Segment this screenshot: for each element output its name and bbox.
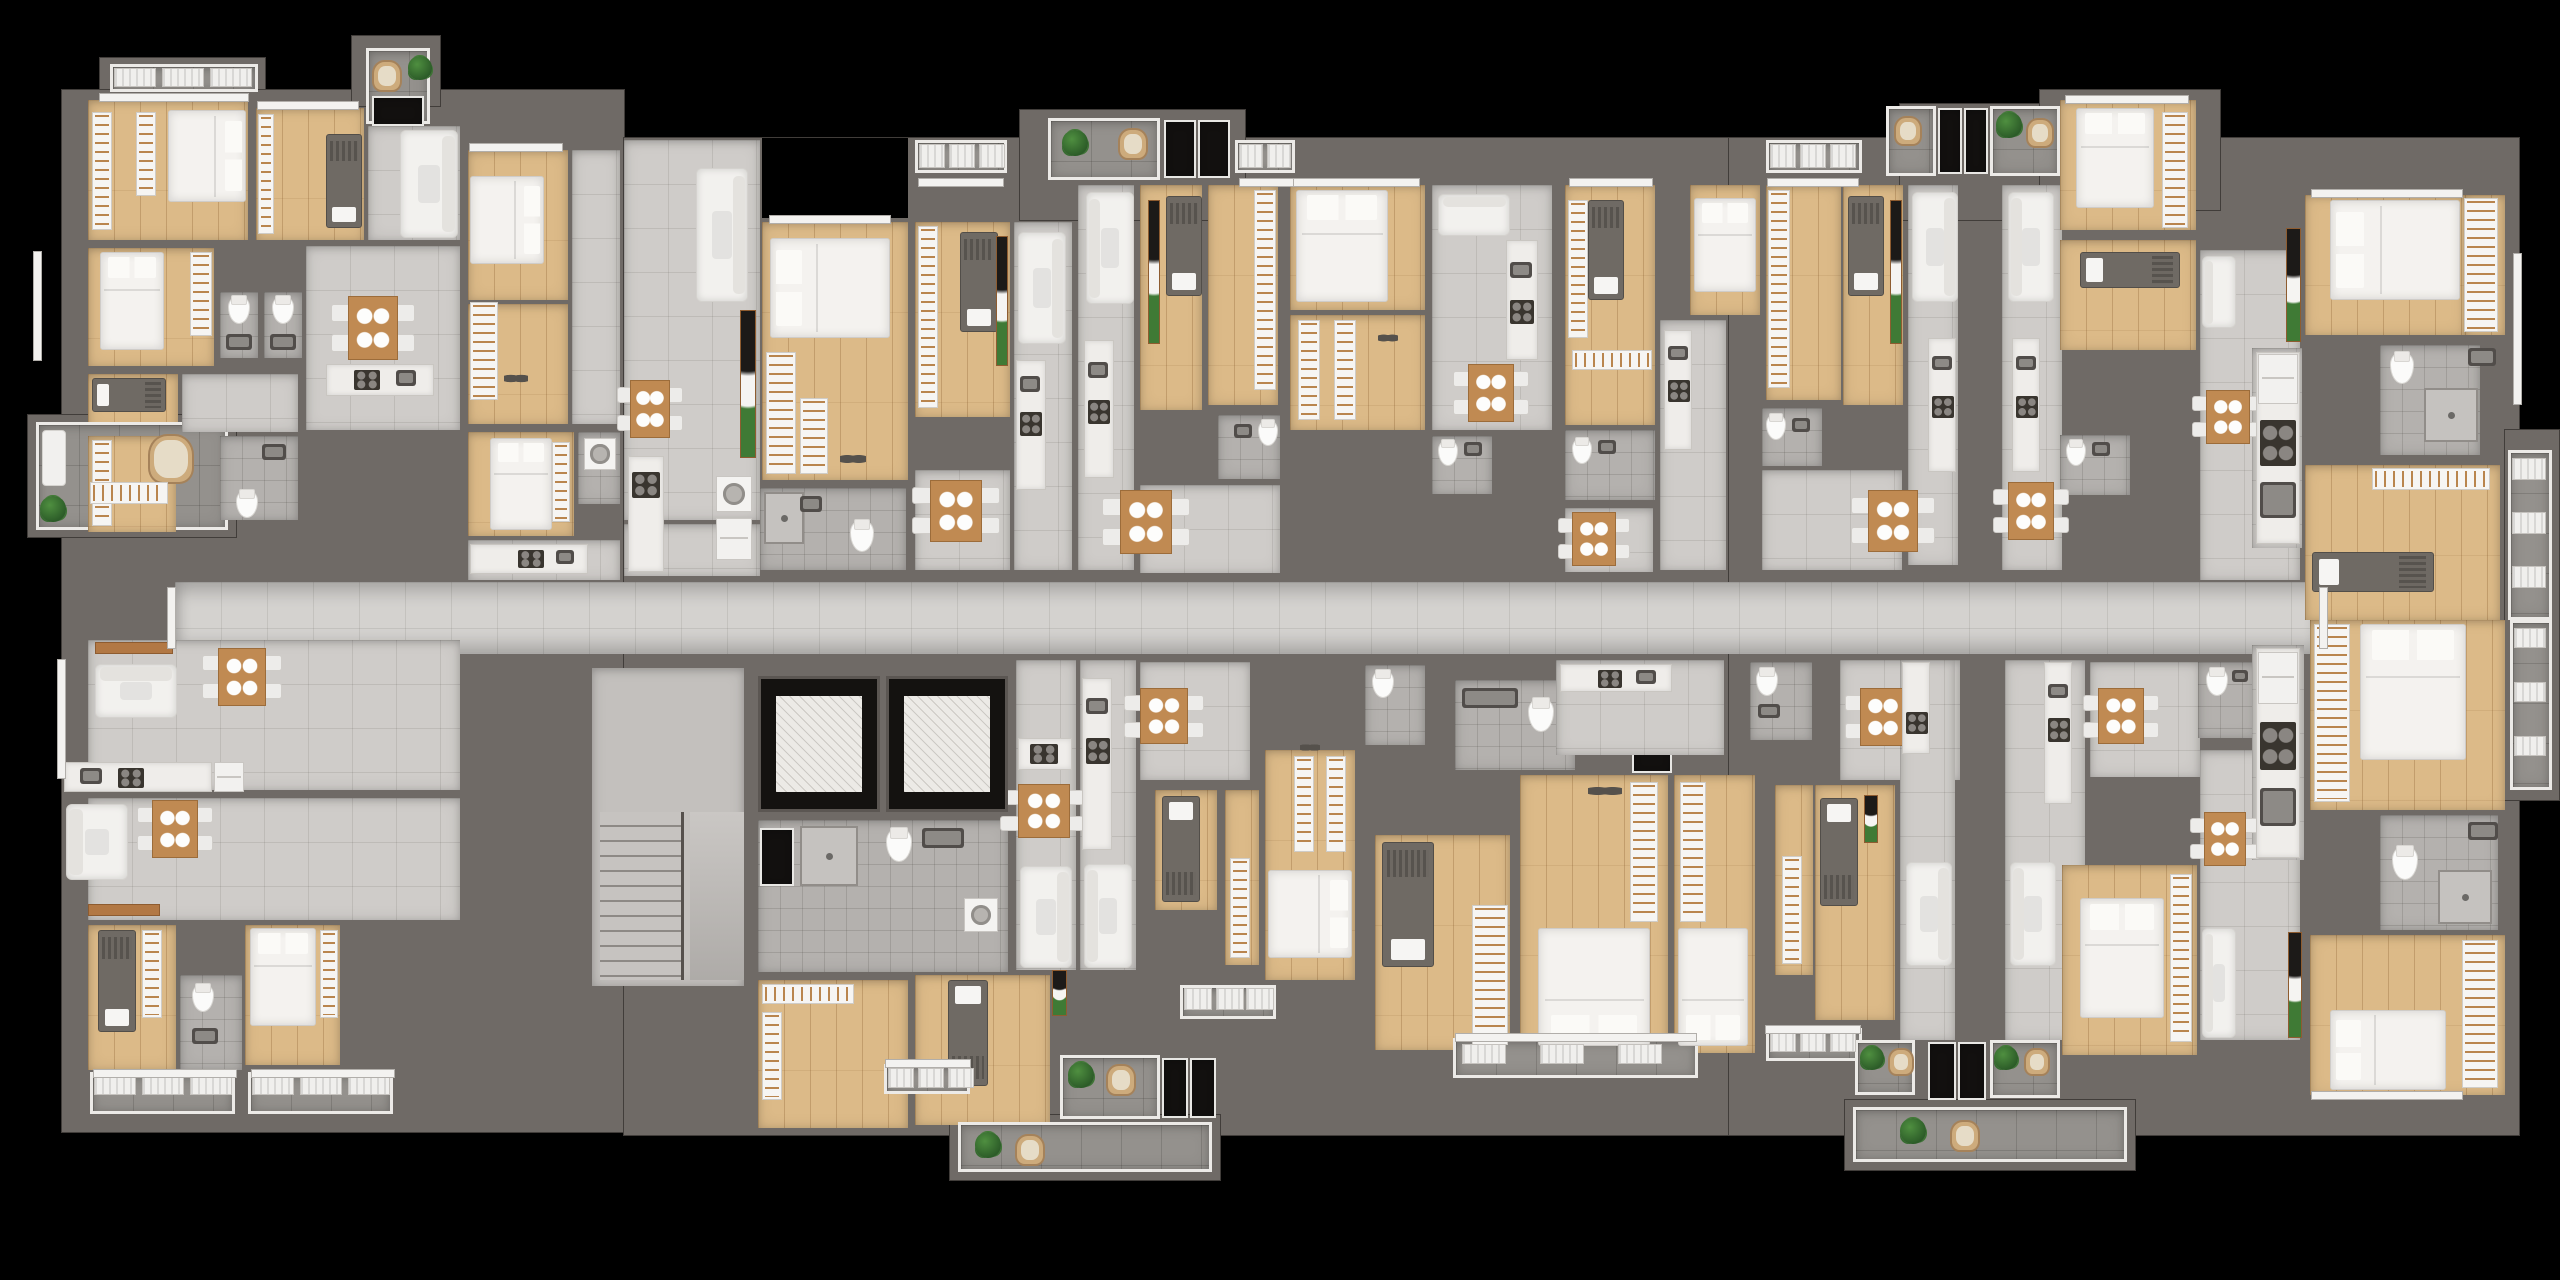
ac-unit bbox=[1246, 988, 1274, 1010]
shaft bbox=[1190, 1058, 1216, 1118]
entry-shaft bbox=[372, 96, 424, 126]
core-bathroom bbox=[758, 820, 1008, 972]
slippers bbox=[1588, 784, 1622, 798]
window bbox=[58, 660, 65, 778]
window bbox=[470, 144, 562, 151]
single-bed bbox=[1166, 196, 1202, 296]
sink bbox=[2092, 442, 2110, 456]
ac-unit bbox=[1618, 1044, 1662, 1064]
sink bbox=[2048, 684, 2068, 698]
stove bbox=[1932, 396, 1954, 418]
elevator bbox=[758, 676, 880, 812]
ac-unit bbox=[1800, 144, 1826, 168]
window bbox=[919, 179, 1003, 186]
plant-icon bbox=[1900, 1118, 1926, 1144]
wardrobe bbox=[1230, 858, 1250, 958]
side-table bbox=[996, 236, 1008, 366]
ac-unit bbox=[949, 144, 975, 168]
sink bbox=[1792, 418, 1810, 432]
wardrobe bbox=[1472, 905, 1508, 1045]
side-table bbox=[1052, 970, 1067, 1016]
slippers bbox=[1300, 742, 1320, 753]
window bbox=[34, 252, 41, 360]
sink bbox=[1462, 688, 1518, 708]
ac-unit bbox=[948, 1068, 974, 1088]
slippers bbox=[1378, 332, 1398, 344]
dining-table bbox=[2098, 688, 2144, 744]
stove bbox=[1088, 400, 1110, 424]
shower bbox=[800, 826, 858, 886]
sink bbox=[192, 1028, 218, 1044]
ac-unit bbox=[1267, 144, 1291, 168]
shower bbox=[2424, 388, 2478, 442]
tv-shelf bbox=[88, 904, 160, 916]
wardrobe bbox=[918, 226, 938, 408]
sink bbox=[270, 334, 296, 350]
stove bbox=[1510, 300, 1534, 324]
side-table bbox=[2288, 932, 2302, 1038]
window bbox=[1456, 1034, 1696, 1041]
window bbox=[2312, 1092, 2462, 1099]
fridge bbox=[214, 762, 244, 792]
sink bbox=[1234, 424, 1252, 438]
ac-unit bbox=[1770, 144, 1796, 168]
core-shaft bbox=[760, 828, 794, 886]
wardrobe bbox=[142, 930, 162, 1018]
single-bed bbox=[326, 134, 362, 228]
tv-shelf bbox=[95, 642, 173, 654]
dining-table bbox=[630, 380, 670, 438]
window bbox=[258, 102, 358, 109]
dining-table bbox=[1120, 490, 1172, 554]
ac-unit bbox=[162, 68, 204, 87]
wicker-chair bbox=[148, 434, 194, 484]
wicker-chair bbox=[1888, 1048, 1914, 1076]
ac-unit bbox=[94, 1076, 136, 1095]
double-bed bbox=[2360, 624, 2466, 760]
single-bed bbox=[98, 930, 136, 1032]
window bbox=[2320, 588, 2327, 648]
double-bed bbox=[1678, 928, 1748, 1046]
ac-unit bbox=[918, 1068, 944, 1088]
window bbox=[252, 1070, 394, 1077]
dining-table bbox=[2204, 812, 2246, 866]
sink bbox=[226, 334, 252, 350]
shaft bbox=[1162, 1058, 1188, 1118]
sink bbox=[2468, 348, 2496, 366]
stove bbox=[354, 370, 380, 390]
hallway bbox=[572, 150, 620, 424]
dining-table bbox=[348, 296, 398, 360]
dining-table bbox=[930, 480, 982, 542]
sofa bbox=[1906, 862, 1952, 966]
wardrobe bbox=[762, 984, 854, 1004]
plant-icon bbox=[408, 56, 432, 80]
sink bbox=[80, 768, 102, 784]
washing-machine bbox=[584, 438, 616, 470]
double-bed bbox=[1538, 928, 1650, 1046]
sink bbox=[1758, 704, 1780, 718]
wardrobe bbox=[1680, 782, 1706, 922]
dining-table bbox=[218, 648, 266, 706]
stove bbox=[118, 768, 144, 788]
plant-icon bbox=[975, 1132, 1001, 1158]
wardrobe bbox=[1298, 320, 1320, 420]
wardrobe bbox=[92, 112, 112, 230]
ac-unit bbox=[2512, 566, 2546, 588]
single-bed bbox=[1588, 200, 1624, 300]
window bbox=[1294, 179, 1419, 186]
sink bbox=[800, 496, 822, 512]
sink bbox=[1598, 440, 1616, 454]
bathroom bbox=[220, 436, 298, 520]
side-table bbox=[1864, 795, 1878, 843]
double-bed bbox=[1694, 198, 1756, 292]
ac-unit bbox=[252, 1076, 294, 1095]
wardrobe bbox=[1782, 856, 1802, 964]
dining-table bbox=[2206, 390, 2250, 444]
window bbox=[100, 94, 248, 101]
single-bed bbox=[1848, 196, 1884, 296]
shaft bbox=[1958, 1042, 1986, 1100]
wicker-chair bbox=[1118, 128, 1148, 160]
ac-unit bbox=[888, 1068, 914, 1088]
wardrobe bbox=[2162, 112, 2188, 228]
staircase bbox=[600, 812, 684, 980]
double-bed bbox=[490, 438, 552, 530]
sofa bbox=[2202, 928, 2236, 1038]
hallway bbox=[182, 374, 298, 432]
sofa bbox=[1912, 192, 1958, 302]
double-bed bbox=[168, 110, 246, 202]
ac-unit bbox=[1770, 1032, 1796, 1052]
wardrobe bbox=[258, 114, 274, 234]
ac-unit bbox=[1830, 144, 1856, 168]
stove bbox=[1668, 380, 1690, 402]
sink bbox=[1086, 698, 1108, 714]
ac-unit bbox=[210, 68, 252, 87]
double-bed bbox=[770, 238, 890, 338]
shaft bbox=[1164, 120, 1196, 178]
wicker-chair bbox=[1106, 1064, 1136, 1096]
dining-table bbox=[1468, 364, 1514, 422]
ac-unit bbox=[114, 68, 156, 87]
double-bed bbox=[1296, 190, 1388, 302]
double-bed bbox=[250, 928, 316, 1026]
washing-machine bbox=[964, 898, 998, 932]
kitchen-counter bbox=[1902, 662, 1930, 754]
bench bbox=[42, 430, 66, 486]
stair-landing bbox=[690, 812, 744, 980]
wardrobe bbox=[90, 482, 168, 504]
side-table bbox=[1148, 200, 1160, 344]
double-bed bbox=[2330, 200, 2460, 300]
wardrobe bbox=[762, 1012, 782, 1100]
sofa bbox=[400, 130, 458, 238]
single-bed bbox=[1162, 796, 1200, 902]
kitchen-counter bbox=[326, 364, 434, 396]
ac-unit bbox=[300, 1076, 342, 1095]
stove bbox=[1598, 670, 1622, 688]
void bbox=[762, 138, 908, 218]
ac-unit bbox=[2514, 682, 2546, 702]
plant-icon bbox=[1994, 1046, 2018, 1070]
shaft bbox=[1198, 120, 1230, 178]
fridge bbox=[716, 518, 752, 560]
sink bbox=[2260, 482, 2296, 518]
sink bbox=[1932, 356, 1952, 370]
plant-icon bbox=[1068, 1062, 1094, 1088]
slippers bbox=[504, 372, 528, 385]
double-bed bbox=[100, 252, 164, 350]
side-table bbox=[1890, 200, 1902, 344]
window bbox=[2066, 96, 2188, 103]
sofa bbox=[95, 664, 177, 718]
wardrobe bbox=[2170, 874, 2192, 1042]
wicker-chair bbox=[372, 60, 402, 92]
window bbox=[2514, 254, 2521, 404]
ac-unit bbox=[979, 144, 1005, 168]
shaft bbox=[1938, 108, 1962, 174]
wardrobe bbox=[1254, 190, 1276, 390]
wardrobe bbox=[1768, 190, 1790, 388]
wardrobe bbox=[800, 398, 828, 474]
ac-unit bbox=[1830, 1032, 1856, 1052]
double-bed bbox=[1268, 870, 1352, 958]
double-bed bbox=[2080, 898, 2164, 1018]
wardrobe bbox=[1294, 756, 1314, 852]
ac-unit bbox=[2512, 458, 2546, 480]
window bbox=[1240, 179, 1296, 186]
sink bbox=[1020, 376, 1040, 392]
sink bbox=[2232, 670, 2248, 682]
wardrobe bbox=[2314, 624, 2350, 802]
single-bed bbox=[2312, 552, 2434, 592]
slippers bbox=[840, 452, 866, 466]
balcony bbox=[1853, 1107, 2127, 1162]
sink bbox=[1088, 362, 1108, 378]
single-bed bbox=[1382, 842, 1434, 967]
sofa bbox=[2010, 862, 2056, 966]
wardrobe bbox=[190, 252, 212, 336]
stove bbox=[1020, 412, 1042, 436]
stove bbox=[2016, 396, 2038, 418]
window bbox=[1768, 179, 1858, 186]
wardrobe bbox=[1568, 200, 1588, 338]
stove bbox=[2260, 420, 2296, 466]
sink bbox=[2260, 788, 2296, 826]
window bbox=[94, 1070, 236, 1077]
floor-plan-render bbox=[0, 0, 2560, 1280]
dining-table bbox=[1868, 490, 1918, 552]
ac-unit bbox=[1462, 1044, 1506, 1064]
ac-unit bbox=[190, 1076, 232, 1095]
plant-icon bbox=[1996, 112, 2022, 138]
window bbox=[886, 1060, 970, 1067]
corridor bbox=[175, 582, 2320, 654]
stove bbox=[518, 550, 544, 568]
sofa bbox=[1084, 864, 1132, 968]
sink bbox=[1668, 346, 1688, 360]
stove bbox=[632, 472, 660, 498]
ac-unit bbox=[1800, 1032, 1826, 1052]
loveseat bbox=[2202, 256, 2236, 328]
plant-icon bbox=[1062, 130, 1088, 156]
shower bbox=[2438, 870, 2492, 924]
wardrobe bbox=[470, 302, 498, 400]
sofa bbox=[1018, 232, 1066, 344]
wardrobe bbox=[2462, 940, 2498, 1088]
wardrobe bbox=[1326, 756, 1346, 852]
window bbox=[168, 588, 175, 648]
wicker-chair bbox=[1894, 116, 1922, 146]
sink bbox=[1510, 262, 1532, 278]
fridge bbox=[2258, 354, 2298, 404]
sink bbox=[2016, 356, 2036, 370]
dining-table bbox=[1860, 688, 1906, 746]
wardrobe bbox=[1334, 320, 1356, 420]
wicker-chair bbox=[2024, 1048, 2050, 1076]
dining-table bbox=[152, 800, 198, 858]
wardrobe bbox=[2372, 468, 2490, 490]
ac-unit bbox=[1239, 144, 1263, 168]
dining-table bbox=[2008, 482, 2054, 540]
window bbox=[1570, 179, 1652, 186]
wardrobe bbox=[136, 112, 156, 196]
window bbox=[1766, 1026, 1860, 1033]
sink bbox=[2468, 822, 2498, 840]
ac-unit bbox=[1184, 988, 1212, 1010]
shaft bbox=[1964, 108, 1988, 174]
stove bbox=[1906, 712, 1928, 734]
single-bed bbox=[92, 378, 166, 412]
dining-table bbox=[1140, 688, 1188, 744]
sink bbox=[1636, 670, 1656, 684]
dining-table bbox=[1018, 784, 1070, 838]
sofa bbox=[2008, 192, 2054, 302]
single-bed bbox=[960, 232, 998, 332]
wicker-chair bbox=[1015, 1134, 1045, 1166]
wardrobe bbox=[320, 930, 338, 1018]
double-bed bbox=[2330, 1010, 2446, 1090]
washing-machine bbox=[716, 476, 752, 512]
double-bed bbox=[2076, 108, 2154, 208]
sink bbox=[1464, 442, 1482, 456]
wicker-chair bbox=[2026, 118, 2054, 148]
wicker-chair bbox=[1950, 1120, 1980, 1152]
side-table bbox=[740, 310, 756, 458]
elevator bbox=[886, 676, 1008, 812]
wardrobe bbox=[766, 352, 796, 474]
sofa bbox=[1086, 192, 1134, 304]
window bbox=[770, 216, 890, 223]
ac-unit bbox=[2514, 628, 2546, 648]
stove bbox=[1030, 744, 1058, 764]
ac-unit bbox=[1540, 1044, 1584, 1064]
sofa bbox=[696, 168, 748, 302]
wardrobe bbox=[552, 442, 570, 522]
loveseat bbox=[1438, 194, 1510, 236]
sofa bbox=[1020, 866, 1072, 968]
stove bbox=[2048, 718, 2070, 742]
ac-unit bbox=[142, 1076, 184, 1095]
ac-unit bbox=[2514, 736, 2546, 756]
dining-table bbox=[1572, 512, 1616, 566]
single-bed bbox=[1820, 798, 1858, 906]
plant-icon bbox=[40, 496, 66, 522]
side-table bbox=[2286, 228, 2301, 342]
sofa bbox=[66, 804, 128, 880]
ac-unit bbox=[2512, 512, 2546, 534]
fridge bbox=[2258, 652, 2298, 704]
plant-icon bbox=[1860, 1046, 1884, 1070]
stove bbox=[1086, 738, 1110, 764]
window bbox=[2312, 190, 2462, 197]
wardrobe bbox=[1630, 782, 1658, 922]
wardrobe bbox=[2464, 198, 2498, 332]
double-bed bbox=[470, 176, 544, 264]
sink bbox=[922, 828, 964, 848]
single-bed bbox=[2080, 252, 2180, 288]
stove bbox=[2260, 722, 2296, 770]
ac-unit bbox=[919, 144, 945, 168]
sink bbox=[396, 370, 416, 386]
sink bbox=[556, 550, 574, 564]
sink bbox=[262, 444, 286, 460]
ac-unit bbox=[1216, 988, 1244, 1010]
ac-unit bbox=[348, 1076, 390, 1095]
shaft bbox=[1928, 1042, 1956, 1100]
wardrobe bbox=[1572, 350, 1652, 370]
shower bbox=[764, 492, 804, 544]
